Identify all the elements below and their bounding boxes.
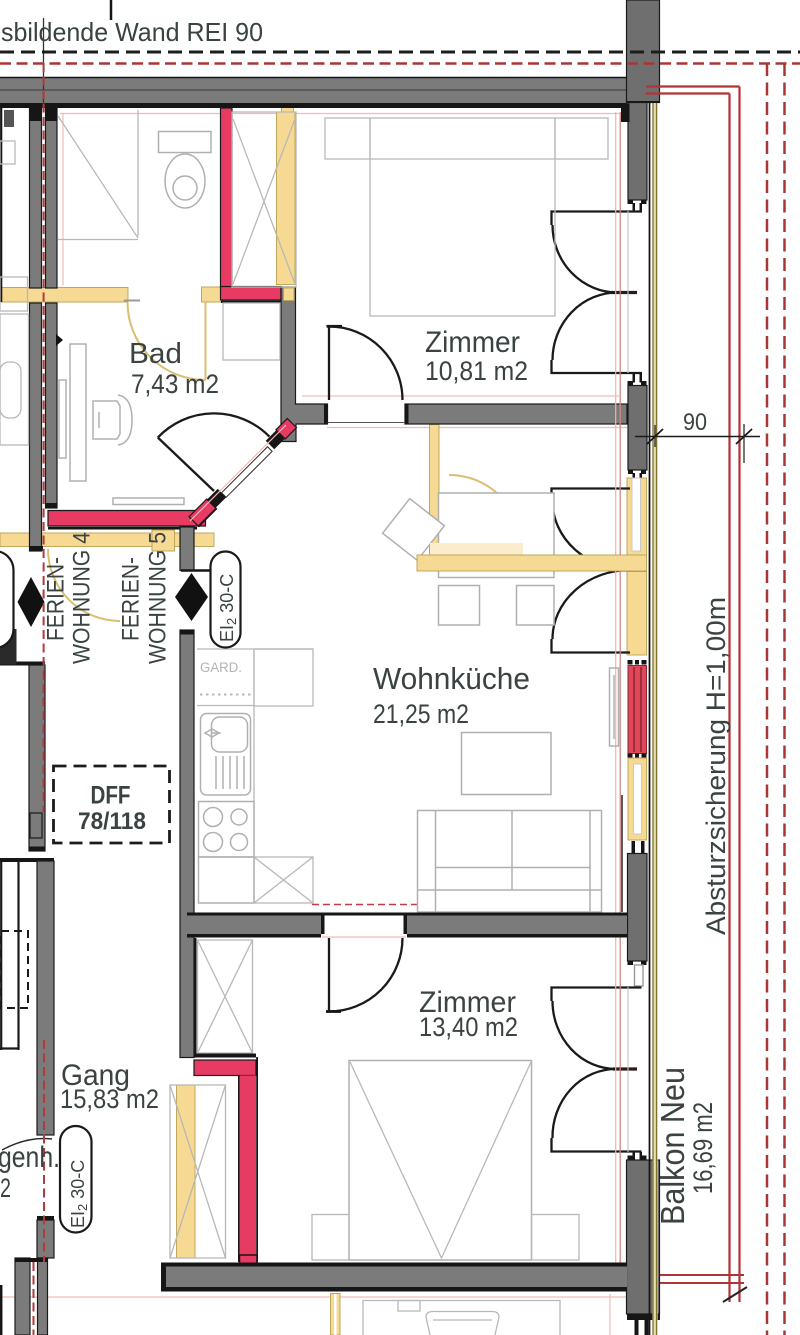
svg-text:Wohnküche: Wohnküche — [373, 661, 530, 696]
svg-text:sbildende Wand REI 90: sbildende Wand REI 90 — [1, 17, 263, 47]
svg-text:GARD.: GARD. — [200, 660, 242, 675]
svg-text:FERIEN-: FERIEN- — [118, 557, 145, 641]
svg-text:WOHNUNG 4: WOHNUNG 4 — [69, 532, 96, 664]
svg-text:genh.: genh. — [0, 1141, 60, 1174]
svg-text:7,43 m2: 7,43 m2 — [131, 369, 219, 399]
svg-text:13,40 m2: 13,40 m2 — [419, 1012, 518, 1042]
svg-text:90: 90 — [683, 409, 707, 436]
svg-text:2: 2 — [0, 1173, 11, 1203]
svg-text:78/118: 78/118 — [78, 808, 146, 835]
svg-text:Absturzsicherung H=1,00m: Absturzsicherung H=1,00m — [701, 597, 731, 935]
svg-text:16,69 m2: 16,69 m2 — [688, 1102, 718, 1194]
svg-text:Zimmer: Zimmer — [425, 326, 520, 359]
svg-text:EI2 30-C: EI2 30-C — [217, 574, 239, 642]
svg-text:Bad: Bad — [129, 338, 182, 370]
svg-text:DFF: DFF — [91, 782, 131, 810]
svg-text:10,81 m2: 10,81 m2 — [425, 356, 528, 386]
svg-text:21,25 m2: 21,25 m2 — [373, 699, 469, 729]
svg-text:15,83 m2: 15,83 m2 — [60, 1084, 159, 1114]
svg-text:WOHNUNG 5: WOHNUNG 5 — [145, 532, 172, 664]
svg-text:Balkon Neu: Balkon Neu — [654, 1067, 691, 1225]
svg-text:EI2 30-C: EI2 30-C — [68, 1160, 90, 1228]
svg-text:FERIEN-: FERIEN- — [43, 557, 70, 641]
